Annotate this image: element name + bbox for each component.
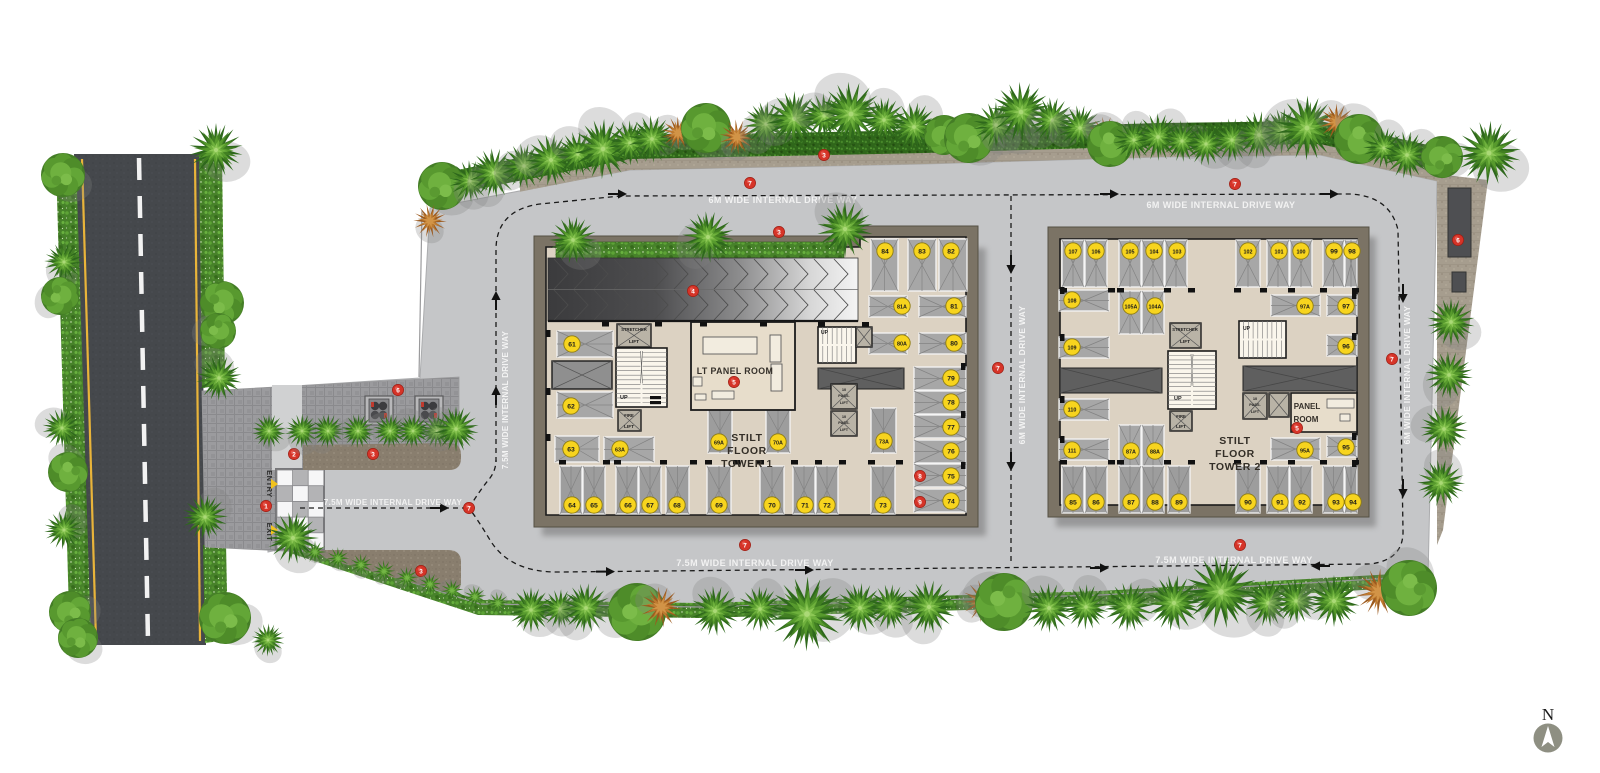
svg-text:92: 92 xyxy=(1298,499,1306,506)
svg-text:LIFT: LIFT xyxy=(840,427,849,432)
svg-text:106: 106 xyxy=(1092,249,1101,255)
svg-text:97A: 97A xyxy=(1300,304,1310,310)
svg-text:111: 111 xyxy=(1068,448,1076,454)
svg-text:LIFT: LIFT xyxy=(1180,339,1190,345)
svg-text:3: 3 xyxy=(419,568,423,575)
svg-text:6M WIDE INTERNAL DRIVE WAY: 6M WIDE INTERNAL DRIVE WAY xyxy=(1017,306,1027,445)
svg-text:62: 62 xyxy=(567,403,575,410)
svg-text:68: 68 xyxy=(673,502,681,509)
svg-text:7: 7 xyxy=(743,542,747,549)
svg-text:73A: 73A xyxy=(879,439,889,445)
svg-text:90: 90 xyxy=(1244,499,1252,506)
svg-text:7.5M WIDE INTERNAL DRIVE WAY: 7.5M WIDE INTERNAL DRIVE WAY xyxy=(1155,555,1312,565)
svg-text:83: 83 xyxy=(918,248,926,255)
svg-text:6M WIDE INTERNAL DRIVE WAY: 6M WIDE INTERNAL DRIVE WAY xyxy=(1402,306,1412,445)
svg-text:84: 84 xyxy=(881,248,889,255)
svg-text:100: 100 xyxy=(1297,249,1306,255)
svg-text:STRETCHER: STRETCHER xyxy=(1172,327,1198,332)
svg-text:67: 67 xyxy=(646,502,654,509)
svg-text:9: 9 xyxy=(918,499,922,506)
svg-text:82: 82 xyxy=(947,248,955,255)
svg-text:94: 94 xyxy=(1349,499,1357,506)
svg-text:7: 7 xyxy=(996,365,1000,372)
svg-text:TOWER 2: TOWER 2 xyxy=(1209,461,1261,473)
svg-text:77: 77 xyxy=(947,424,955,431)
svg-text:4: 4 xyxy=(691,288,695,295)
svg-text:PASS.: PASS. xyxy=(1249,402,1260,407)
svg-text:6M WIDE INTERNAL DRIVE WAY: 6M WIDE INTERNAL DRIVE WAY xyxy=(1147,200,1296,210)
svg-text:FLOOR: FLOOR xyxy=(1215,448,1255,460)
svg-text:LIFT: LIFT xyxy=(629,339,639,345)
svg-text:93: 93 xyxy=(1332,499,1340,506)
svg-text:5: 5 xyxy=(732,379,736,386)
svg-text:2: 2 xyxy=(292,451,296,458)
svg-text:88: 88 xyxy=(1151,499,1159,506)
svg-text:107: 107 xyxy=(1069,249,1078,255)
svg-text:7.5M WIDE INTERNAL DRIVE WAY: 7.5M WIDE INTERNAL DRIVE WAY xyxy=(676,558,833,568)
svg-text:65: 65 xyxy=(590,502,598,509)
svg-text:99: 99 xyxy=(1330,248,1338,255)
svg-text:79: 79 xyxy=(947,375,955,382)
svg-text:95: 95 xyxy=(1342,444,1350,451)
svg-text:8: 8 xyxy=(918,473,922,480)
svg-text:7: 7 xyxy=(467,505,471,512)
svg-text:3: 3 xyxy=(777,229,781,236)
svg-text:PASS.: PASS. xyxy=(838,420,849,425)
svg-text:LIFT: LIFT xyxy=(1251,409,1260,414)
svg-text:96: 96 xyxy=(1342,343,1350,350)
svg-text:101: 101 xyxy=(1275,249,1284,255)
svg-text:7.5M WIDE INTERNAL DRIVE WAY: 7.5M WIDE INTERNAL DRIVE WAY xyxy=(501,331,510,470)
svg-text:FLOOR: FLOOR xyxy=(727,445,767,457)
svg-text:FIRE: FIRE xyxy=(624,413,634,418)
svg-text:3: 3 xyxy=(822,152,826,159)
svg-text:102: 102 xyxy=(1244,249,1253,255)
svg-text:81A: 81A xyxy=(897,304,907,310)
svg-text:98: 98 xyxy=(1348,248,1356,255)
svg-text:7: 7 xyxy=(1233,181,1237,188)
svg-text:LIFT: LIFT xyxy=(624,424,634,430)
svg-text:85: 85 xyxy=(1069,499,1077,506)
svg-text:UP: UP xyxy=(821,330,829,336)
svg-text:UP: UP xyxy=(620,395,628,401)
svg-text:63: 63 xyxy=(567,446,575,453)
svg-text:69: 69 xyxy=(715,502,723,509)
svg-text:95A: 95A xyxy=(1300,448,1310,454)
svg-text:10: 10 xyxy=(1253,396,1257,401)
svg-text:89: 89 xyxy=(1175,499,1183,506)
svg-text:87A: 87A xyxy=(1126,449,1136,455)
svg-text:LIFT: LIFT xyxy=(1176,424,1186,430)
svg-text:81: 81 xyxy=(950,303,958,310)
svg-text:103: 103 xyxy=(1173,249,1182,255)
svg-text:61: 61 xyxy=(568,341,576,348)
svg-text:66: 66 xyxy=(624,502,632,509)
svg-text:73: 73 xyxy=(879,502,887,509)
svg-text:N: N xyxy=(1542,705,1554,724)
svg-text:STRETCHER: STRETCHER xyxy=(621,327,647,332)
svg-text:80: 80 xyxy=(950,340,958,347)
svg-text:110: 110 xyxy=(1068,407,1077,413)
svg-text:5: 5 xyxy=(1295,425,1299,432)
svg-text:108: 108 xyxy=(1068,298,1077,304)
svg-text:87: 87 xyxy=(1127,499,1135,506)
svg-text:104: 104 xyxy=(1150,249,1159,255)
svg-text:7: 7 xyxy=(748,180,752,187)
svg-text:86: 86 xyxy=(1092,499,1100,506)
svg-text:6: 6 xyxy=(396,387,400,394)
svg-text:80A: 80A xyxy=(897,341,907,347)
svg-text:PASS.: PASS. xyxy=(838,393,849,398)
svg-text:STILT: STILT xyxy=(731,432,762,444)
svg-text:78: 78 xyxy=(947,399,955,406)
svg-text:74: 74 xyxy=(947,498,955,505)
svg-text:LT PANEL ROOM: LT PANEL ROOM xyxy=(697,366,774,376)
svg-text:72: 72 xyxy=(823,502,831,509)
svg-text:6: 6 xyxy=(1456,237,1460,244)
svg-text:104A: 104A xyxy=(1149,304,1162,310)
svg-text:STILT: STILT xyxy=(1219,435,1250,447)
svg-text:69A: 69A xyxy=(714,440,724,446)
svg-text:7: 7 xyxy=(1238,542,1242,549)
svg-text:105A: 105A xyxy=(1125,304,1138,310)
svg-text:10: 10 xyxy=(842,387,846,392)
svg-text:FIRE: FIRE xyxy=(1176,414,1186,419)
svg-text:70: 70 xyxy=(768,502,776,509)
svg-text:7.5M WIDE INTERNAL DRIVE WAY: 7.5M WIDE INTERNAL DRIVE WAY xyxy=(324,498,463,507)
svg-text:UP: UP xyxy=(1243,326,1251,332)
svg-text:105: 105 xyxy=(1126,249,1135,255)
svg-text:3: 3 xyxy=(371,451,375,458)
svg-text:UP: UP xyxy=(1174,396,1182,402)
svg-text:LIFT: LIFT xyxy=(840,400,849,405)
svg-text:76: 76 xyxy=(947,448,955,455)
svg-text:PANEL: PANEL xyxy=(1294,402,1321,411)
svg-text:64: 64 xyxy=(568,502,576,509)
svg-text:TOWER 1: TOWER 1 xyxy=(721,458,773,470)
svg-text:109: 109 xyxy=(1068,345,1077,351)
svg-text:63A: 63A xyxy=(615,447,625,453)
svg-text:1: 1 xyxy=(264,503,268,510)
svg-text:88A: 88A xyxy=(1150,449,1160,455)
svg-text:75: 75 xyxy=(947,473,955,480)
svg-text:70A: 70A xyxy=(773,440,783,446)
svg-text:97: 97 xyxy=(1342,303,1350,310)
svg-text:7: 7 xyxy=(1390,356,1394,363)
svg-text:91: 91 xyxy=(1276,499,1284,506)
svg-text:10: 10 xyxy=(842,414,846,419)
svg-text:71: 71 xyxy=(801,502,809,509)
